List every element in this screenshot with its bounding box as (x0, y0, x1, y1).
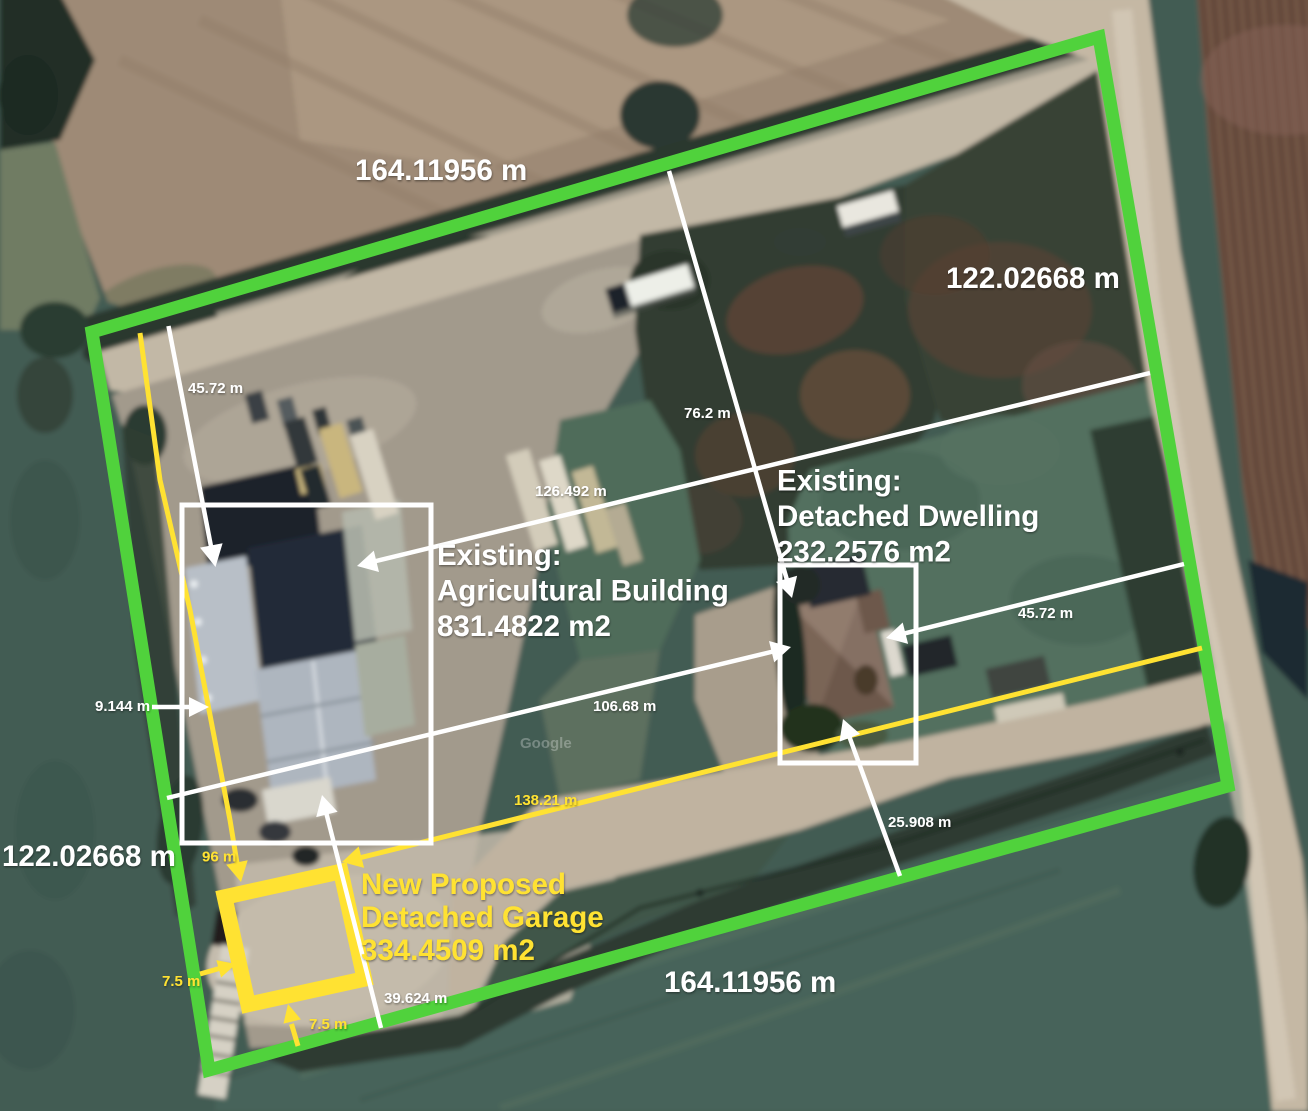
svg-text:25.908 m: 25.908 m (888, 814, 951, 831)
svg-text:Existing:: Existing: (777, 465, 902, 498)
svg-text:138.21 m: 138.21 m (514, 792, 577, 809)
svg-text:76.2 m: 76.2 m (684, 405, 731, 422)
svg-text:New Proposed: New Proposed (361, 868, 566, 901)
svg-text:39.624 m: 39.624 m (384, 990, 447, 1007)
svg-text:831.4822 m2: 831.4822 m2 (437, 610, 611, 643)
svg-text:122.02668 m: 122.02668 m (946, 262, 1120, 295)
svg-text:Detached Garage: Detached Garage (361, 901, 604, 934)
svg-text:106.68 m: 106.68 m (593, 698, 656, 715)
svg-text:164.11956 m: 164.11956 m (664, 966, 836, 999)
svg-text:45.72 m: 45.72 m (188, 380, 243, 397)
svg-text:Existing:: Existing: (437, 539, 562, 572)
svg-text:7.5 m: 7.5 m (162, 973, 200, 990)
svg-text:45.72 m: 45.72 m (1018, 605, 1073, 622)
svg-text:Google: Google (520, 735, 572, 752)
svg-text:96 m: 96 m (202, 849, 236, 866)
svg-text:Agricultural Building: Agricultural Building (437, 575, 729, 608)
svg-text:334.4509 m2: 334.4509 m2 (361, 934, 535, 967)
svg-text:122.02668 m: 122.02668 m (2, 840, 176, 873)
svg-text:164.11956 m: 164.11956 m (355, 154, 527, 187)
svg-text:7.5 m: 7.5 m (309, 1016, 347, 1033)
svg-text:232.2576 m2: 232.2576 m2 (777, 536, 951, 569)
svg-text:126.492 m: 126.492 m (535, 483, 607, 500)
svg-text:9.144 m: 9.144 m (95, 698, 150, 715)
svg-text:Detached Dwelling: Detached Dwelling (777, 500, 1039, 533)
